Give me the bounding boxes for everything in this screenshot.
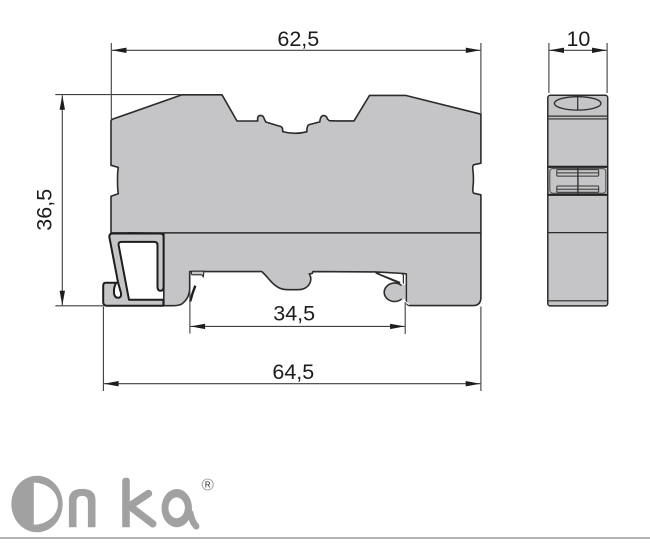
svg-text:34,5: 34,5 [273, 302, 315, 326]
svg-text:R: R [205, 480, 211, 489]
svg-text:62,5: 62,5 [277, 27, 319, 51]
svg-text:36,5: 36,5 [32, 189, 56, 231]
svg-text:64,5: 64,5 [272, 360, 314, 384]
svg-text:10: 10 [566, 27, 590, 51]
